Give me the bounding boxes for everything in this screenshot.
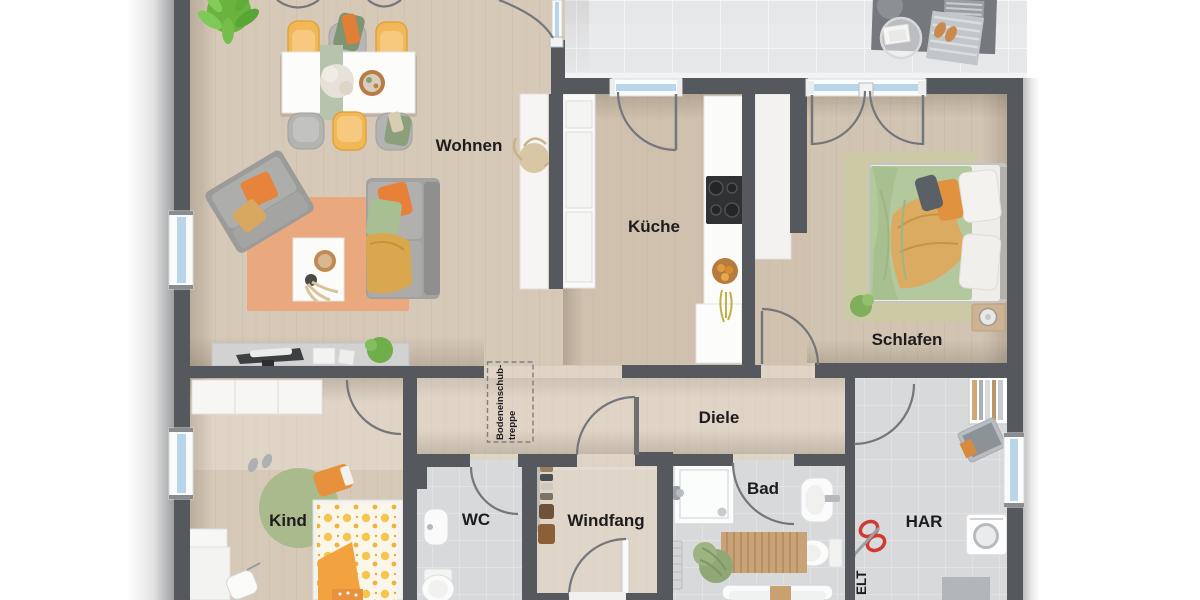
svg-text:Diele: Diele — [699, 408, 740, 427]
svg-text:Schlafen: Schlafen — [872, 330, 943, 349]
svg-text:Kind: Kind — [269, 511, 307, 530]
svg-text:HAR: HAR — [906, 512, 943, 531]
svg-text:Windfang: Windfang — [567, 511, 644, 530]
svg-text:Küche: Küche — [628, 217, 680, 236]
svg-text:treppe: treppe — [507, 411, 518, 440]
svg-text:Bodeneinschub-: Bodeneinschub- — [495, 365, 506, 440]
svg-text:Bad: Bad — [747, 479, 779, 498]
svg-text:Wohnen: Wohnen — [436, 136, 503, 155]
svg-text:ELT: ELT — [854, 570, 869, 595]
svg-text:WC: WC — [462, 510, 490, 529]
